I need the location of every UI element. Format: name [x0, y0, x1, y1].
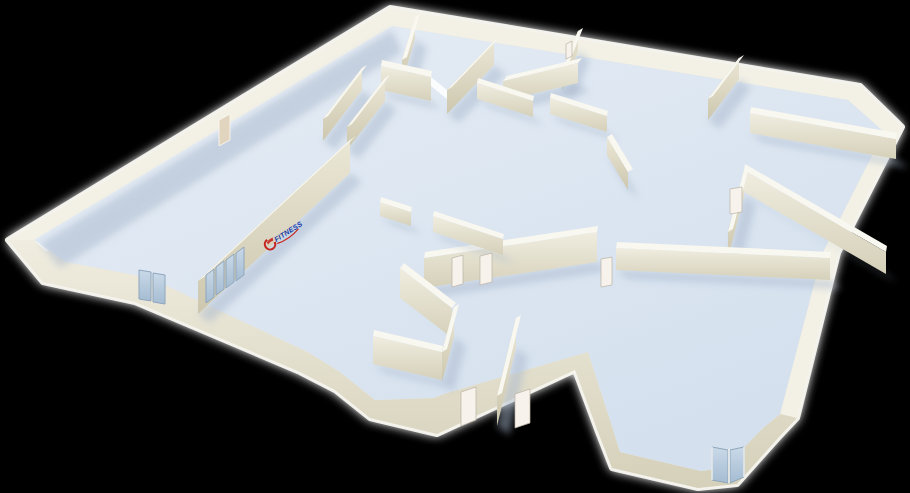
interior-door [452, 255, 463, 287]
exterior-door-northwest [219, 114, 230, 146]
floorplan-3d-view[interactable]: FITNESS [0, 0, 910, 493]
entrance-glass-door [712, 447, 744, 483]
interior-door [730, 187, 742, 214]
floorplan-canvas: FITNESS [0, 0, 910, 493]
interior-door [566, 41, 572, 59]
interior-door [601, 257, 612, 287]
interior-door [461, 387, 476, 426]
interior-door [480, 253, 492, 285]
interior-door [515, 389, 530, 428]
